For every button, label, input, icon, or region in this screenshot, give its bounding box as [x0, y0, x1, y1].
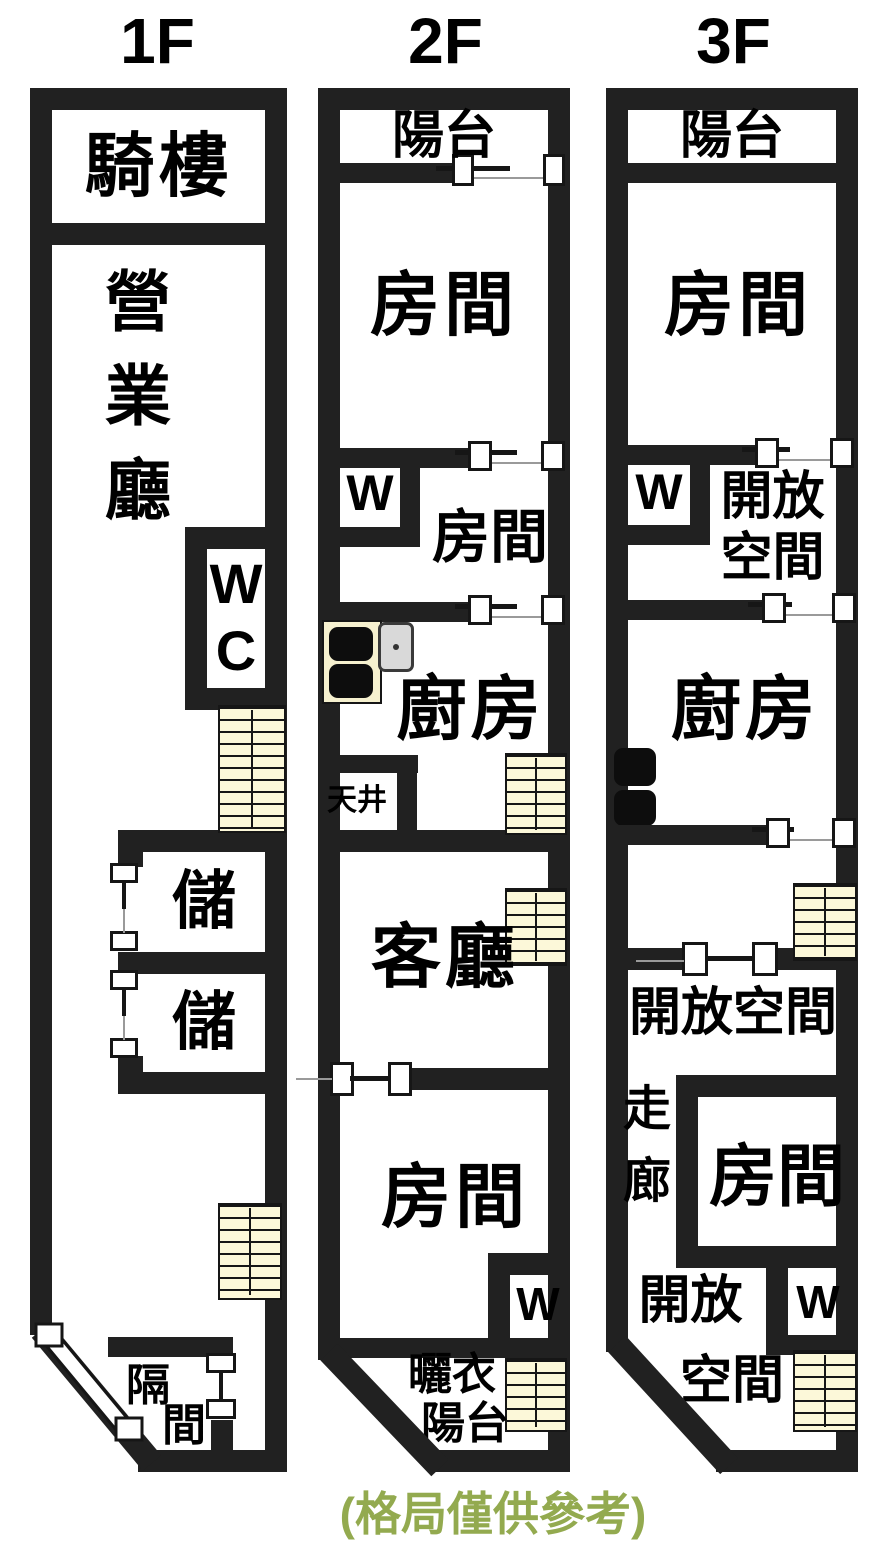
room-label-business-hall: 營 業 廳 — [95, 242, 185, 552]
room-label-partition-2: 間 — [158, 1400, 210, 1452]
room-label-closet-front-3f: W — [628, 462, 690, 522]
door-symbol — [388, 1062, 412, 1096]
wall — [428, 1450, 570, 1472]
door-symbol — [110, 931, 138, 951]
door-symbol — [206, 1353, 236, 1373]
door-symbol — [752, 942, 778, 976]
door-symbol — [110, 970, 138, 990]
room-label-closet-rear-2f: W — [510, 1273, 566, 1335]
window-symbol — [788, 839, 834, 841]
door-leaf — [123, 909, 125, 933]
wall — [185, 527, 207, 710]
room-label-room-front-3f: 房間 — [640, 230, 836, 380]
window-symbol — [473, 177, 551, 179]
wall — [676, 1075, 698, 1268]
room-label-storage-lower: 儲 — [143, 974, 265, 1072]
wall — [30, 88, 287, 110]
wall — [318, 527, 420, 547]
door-leaf — [219, 1373, 223, 1399]
room-label-closet-rear-3f: W — [788, 1272, 848, 1332]
room-label-arcade: 騎樓 — [52, 110, 265, 223]
window-symbol — [832, 818, 856, 848]
room-label-corridor: 走 廊 — [618, 1078, 676, 1213]
wall — [30, 88, 52, 1335]
room-label-light-well: 天井 — [320, 775, 394, 827]
room-label-closet-front-2f: W — [340, 462, 400, 525]
door-symbol — [682, 942, 708, 976]
room-label-room-rear-3f: 房間 — [698, 1130, 856, 1225]
wall — [397, 755, 417, 832]
door-leaf — [122, 883, 126, 909]
room-label-living-room: 客廳 — [330, 915, 560, 1000]
window-symbol — [541, 441, 565, 471]
wall — [716, 1450, 858, 1472]
room-label-room-middle-2f: 房間 — [415, 498, 565, 578]
room-label-open-space-rear-2: 空間 — [668, 1348, 796, 1416]
window-symbol — [766, 818, 790, 848]
room-label-laundry-2: 陽台 — [405, 1398, 525, 1450]
wall — [766, 1268, 788, 1342]
caption-note: (格局僅供參考) — [293, 1480, 693, 1542]
stove-burner-icon — [614, 790, 656, 826]
door-leaf — [296, 1078, 332, 1080]
window-symbol — [468, 441, 492, 471]
floor-title-2f: 2F — [383, 2, 508, 82]
room-label-open-space-rear-1: 開放 — [628, 1272, 753, 1332]
wall — [398, 1068, 570, 1090]
stove-burner-icon — [329, 627, 373, 661]
wall — [676, 1246, 858, 1268]
door-leaf — [350, 1076, 390, 1081]
wall — [606, 525, 710, 545]
wall — [118, 830, 287, 852]
door-leaf — [706, 956, 754, 961]
wall — [185, 527, 287, 549]
room-label-storage-upper: 儲 — [143, 852, 265, 952]
window-symbol — [468, 595, 492, 625]
room-label-kitchen-2f: 廚房 — [378, 662, 563, 757]
room-label-open-space-middle: 開放空間 — [610, 985, 856, 1043]
stairs — [218, 705, 286, 833]
room-label-open-space-front: 開放 空間 — [705, 458, 840, 598]
door-leaf — [123, 1016, 125, 1040]
stairs — [218, 1203, 282, 1300]
wall — [318, 88, 340, 1360]
window-symbol — [492, 462, 544, 464]
stairs — [793, 1350, 857, 1432]
window-symbol — [541, 595, 565, 625]
wall — [118, 1056, 143, 1074]
door-symbol — [110, 1038, 138, 1058]
door-leaf — [122, 990, 126, 1016]
floor-title-1f: 1F — [95, 2, 220, 82]
room-label-wc: W C — [207, 547, 265, 688]
room-label-balcony-2f: 陽台 — [340, 110, 548, 163]
stairs — [793, 883, 857, 961]
wall — [118, 952, 287, 974]
wall — [606, 948, 690, 970]
room-label-room-rear-2f: 房間 — [350, 1150, 560, 1245]
door-symbol — [110, 863, 138, 883]
door-symbol — [116, 1418, 142, 1440]
door-leaf — [636, 960, 684, 962]
room-label-laundry-1: 曬衣 — [392, 1350, 512, 1400]
floor-plan-canvas: 1F 2F 3F 騎 — [0, 0, 889, 1548]
wall — [318, 602, 475, 622]
stove-burner-icon — [329, 664, 373, 698]
door-symbol — [206, 1399, 236, 1419]
wall — [488, 1253, 570, 1275]
wall — [211, 1420, 233, 1452]
room-label-room-front-2f: 房間 — [340, 230, 548, 380]
wall — [138, 1450, 287, 1472]
stairs — [505, 753, 567, 835]
room-label-balcony-3f: 陽台 — [628, 110, 836, 163]
window-symbol — [786, 614, 834, 616]
wall — [676, 1075, 858, 1097]
window-symbol — [492, 616, 544, 618]
floor-title-3f: 3F — [671, 2, 796, 82]
room-label-kitchen-3f: 廚房 — [650, 662, 840, 757]
wall — [118, 1072, 287, 1094]
